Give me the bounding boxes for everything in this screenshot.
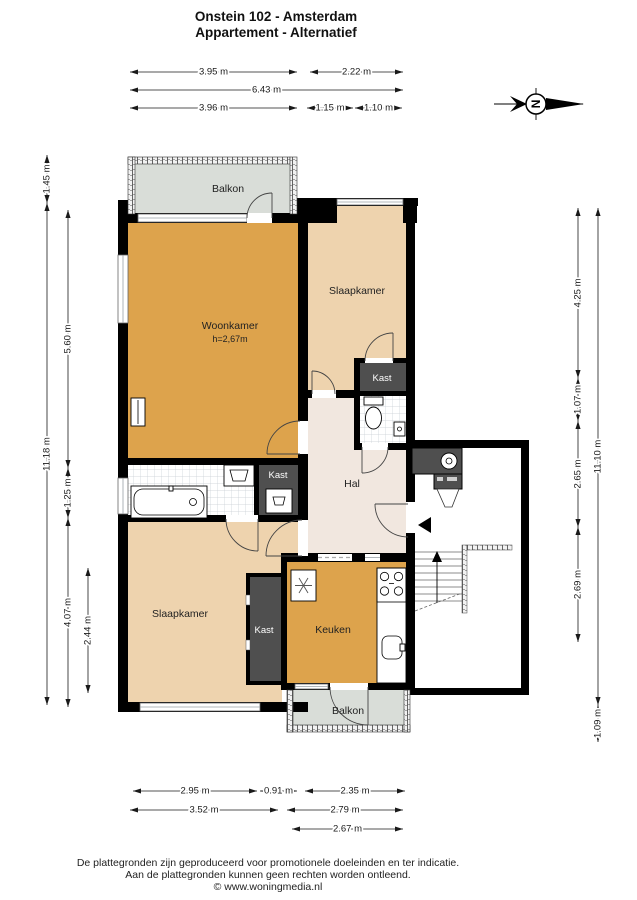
dimension-label: 1.07 m (573, 385, 584, 414)
wall-segment (354, 358, 360, 450)
dimension-label: 1.09 m (593, 709, 604, 738)
footer-credit: © www.woningmedia.nl (214, 881, 323, 893)
dimensions-right: 4.25 m1.07 m2.65 m2.69 m11.10 m1.09 m (573, 208, 604, 742)
wall-segment (254, 458, 259, 522)
toilet-sink (394, 422, 405, 436)
label-slaapkamer-top: Slaapkamer (329, 285, 386, 297)
dimension-label: 2.65 m (573, 459, 584, 488)
page-subtitle: Appartement - Alternatief (195, 25, 357, 40)
dimension-label: 2.35 m (340, 786, 369, 797)
radiator (131, 398, 145, 426)
kast-door-marker (246, 640, 250, 650)
wall-segment (246, 573, 282, 577)
label-kast-bottom: Kast (254, 625, 273, 636)
window (140, 703, 260, 711)
floorplan-page: Onstein 102 - Amsterdam Appartement - Al… (0, 0, 637, 900)
meter-icon (437, 477, 443, 481)
dimension-label: 2.95 m (180, 786, 209, 797)
wall-segment (298, 206, 308, 560)
toilet (364, 397, 383, 429)
dimension-label: 2.79 m (330, 805, 359, 816)
dimension-label: 1.10 m (364, 103, 393, 114)
label-keuken: Keuken (315, 624, 351, 636)
footer-disclaimer-2: Aan de plattegronden kunnen geen rechten… (125, 869, 410, 881)
compass-north-arrow-icon (546, 98, 584, 110)
window (337, 199, 403, 205)
room-balkon-top (128, 157, 290, 214)
railing (287, 690, 293, 732)
page-title: Onstein 102 - Amsterdam (195, 9, 357, 24)
stair-edge (467, 545, 512, 550)
label-balkon-top: Balkon (212, 183, 244, 195)
dimension-label: 1.25 m (63, 478, 74, 507)
dimension-label: 11.18 m (42, 437, 53, 471)
wall-segment (406, 198, 415, 690)
dimension-label: 3.52 m (189, 805, 218, 816)
stair-stringer (462, 545, 467, 613)
wall-segment (354, 391, 406, 396)
room-trappenhuis (415, 448, 521, 688)
railing (290, 157, 297, 214)
bathroom-sink (224, 465, 254, 486)
footer-disclaimer-1: De plattegronden zijn geproduceerd voor … (77, 857, 459, 869)
label-slaapkamer-bottom: Slaapkamer (152, 608, 209, 620)
dimension-label: 2.67 m (333, 824, 362, 835)
label-kast-washok: Kast (268, 470, 287, 481)
dimension-label: 5.60 m (63, 324, 74, 353)
dimension-label: 2.22 m (342, 67, 371, 78)
wall-opening (365, 554, 380, 561)
railing (287, 725, 410, 732)
kast-door-marker (246, 595, 250, 605)
label-woonkamer-height: h=2,67m (212, 334, 247, 344)
north-compass: N (494, 88, 584, 120)
dimensions-top: 3.95 m2.22 m6.43 m3.96 m1.15 m1.10 m (130, 67, 403, 114)
railing (128, 157, 290, 164)
fridge (291, 570, 316, 601)
label-hal: Hal (344, 478, 360, 490)
dimension-label: 3.95 m (199, 67, 228, 78)
wall-segment (246, 573, 250, 685)
kitchen-counter (377, 568, 406, 683)
mv-unit-icon (441, 453, 457, 469)
utility-closet (434, 474, 462, 489)
washing-machine (266, 489, 292, 513)
bathtub (131, 486, 207, 518)
compass-north-label: N (529, 100, 543, 109)
dimension-label: 2.44 m (83, 616, 94, 645)
dimension-label: 4.25 m (573, 278, 584, 307)
dimension-label: 1.45 m (42, 164, 53, 193)
label-woonkamer: Woonkamer (202, 320, 259, 332)
dimension-label: 0.91 m (264, 786, 293, 797)
dimension-label: 2.69 m (573, 570, 584, 599)
window (118, 255, 128, 323)
dimension-label: 6.43 m (252, 85, 281, 96)
dimension-label: 11.10 m (593, 440, 604, 474)
dimension-label: 4.07 m (63, 598, 74, 627)
label-balkon-bottom: Balkon (332, 705, 364, 717)
dimensions-bottom: 2.95 m0.91 m2.35 m3.52 m2.79 m2.67 m (130, 786, 405, 835)
dimensions-left: 1.45 m11.18 m5.60 m1.25 m4.07 m2.44 m (42, 155, 94, 707)
wall-segment (406, 688, 529, 695)
dimension-label: 1.15 m (315, 103, 344, 114)
wall-opening (318, 554, 352, 561)
window (295, 684, 328, 689)
railing (404, 690, 410, 732)
wall-segment (415, 440, 529, 448)
dimension-label: 3.96 m (199, 103, 228, 114)
floor-plan-svg: Onstein 102 - Amsterdam Appartement - Al… (0, 0, 637, 900)
railing (128, 157, 135, 214)
window (138, 214, 247, 222)
wall-segment (521, 440, 529, 695)
wall-segment (118, 458, 308, 465)
label-kast-top: Kast (372, 373, 391, 384)
window (118, 478, 128, 514)
wall-segment (246, 681, 282, 685)
meter-icon (447, 477, 457, 481)
